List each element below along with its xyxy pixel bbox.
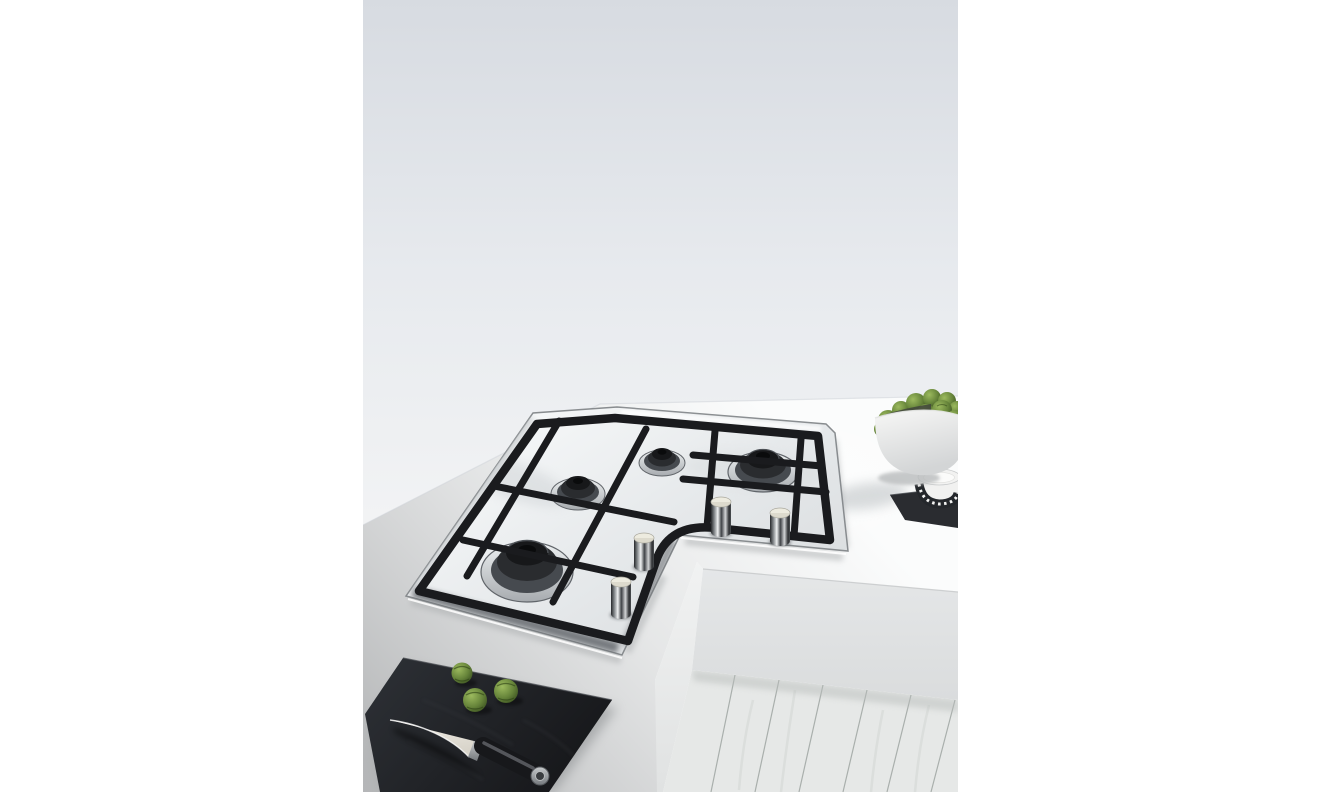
knife-butt-ring: [536, 772, 545, 781]
control-knob-3: [710, 497, 732, 537]
control-knob-1: [610, 577, 632, 619]
photo-page: [0, 0, 1320, 792]
scene-svg: [363, 0, 958, 792]
left-margin: [0, 0, 363, 792]
control-knob-4: [769, 508, 791, 546]
control-knob-2: [633, 533, 655, 571]
right-margin: [958, 0, 1320, 792]
kitchen-photo: [363, 0, 958, 792]
